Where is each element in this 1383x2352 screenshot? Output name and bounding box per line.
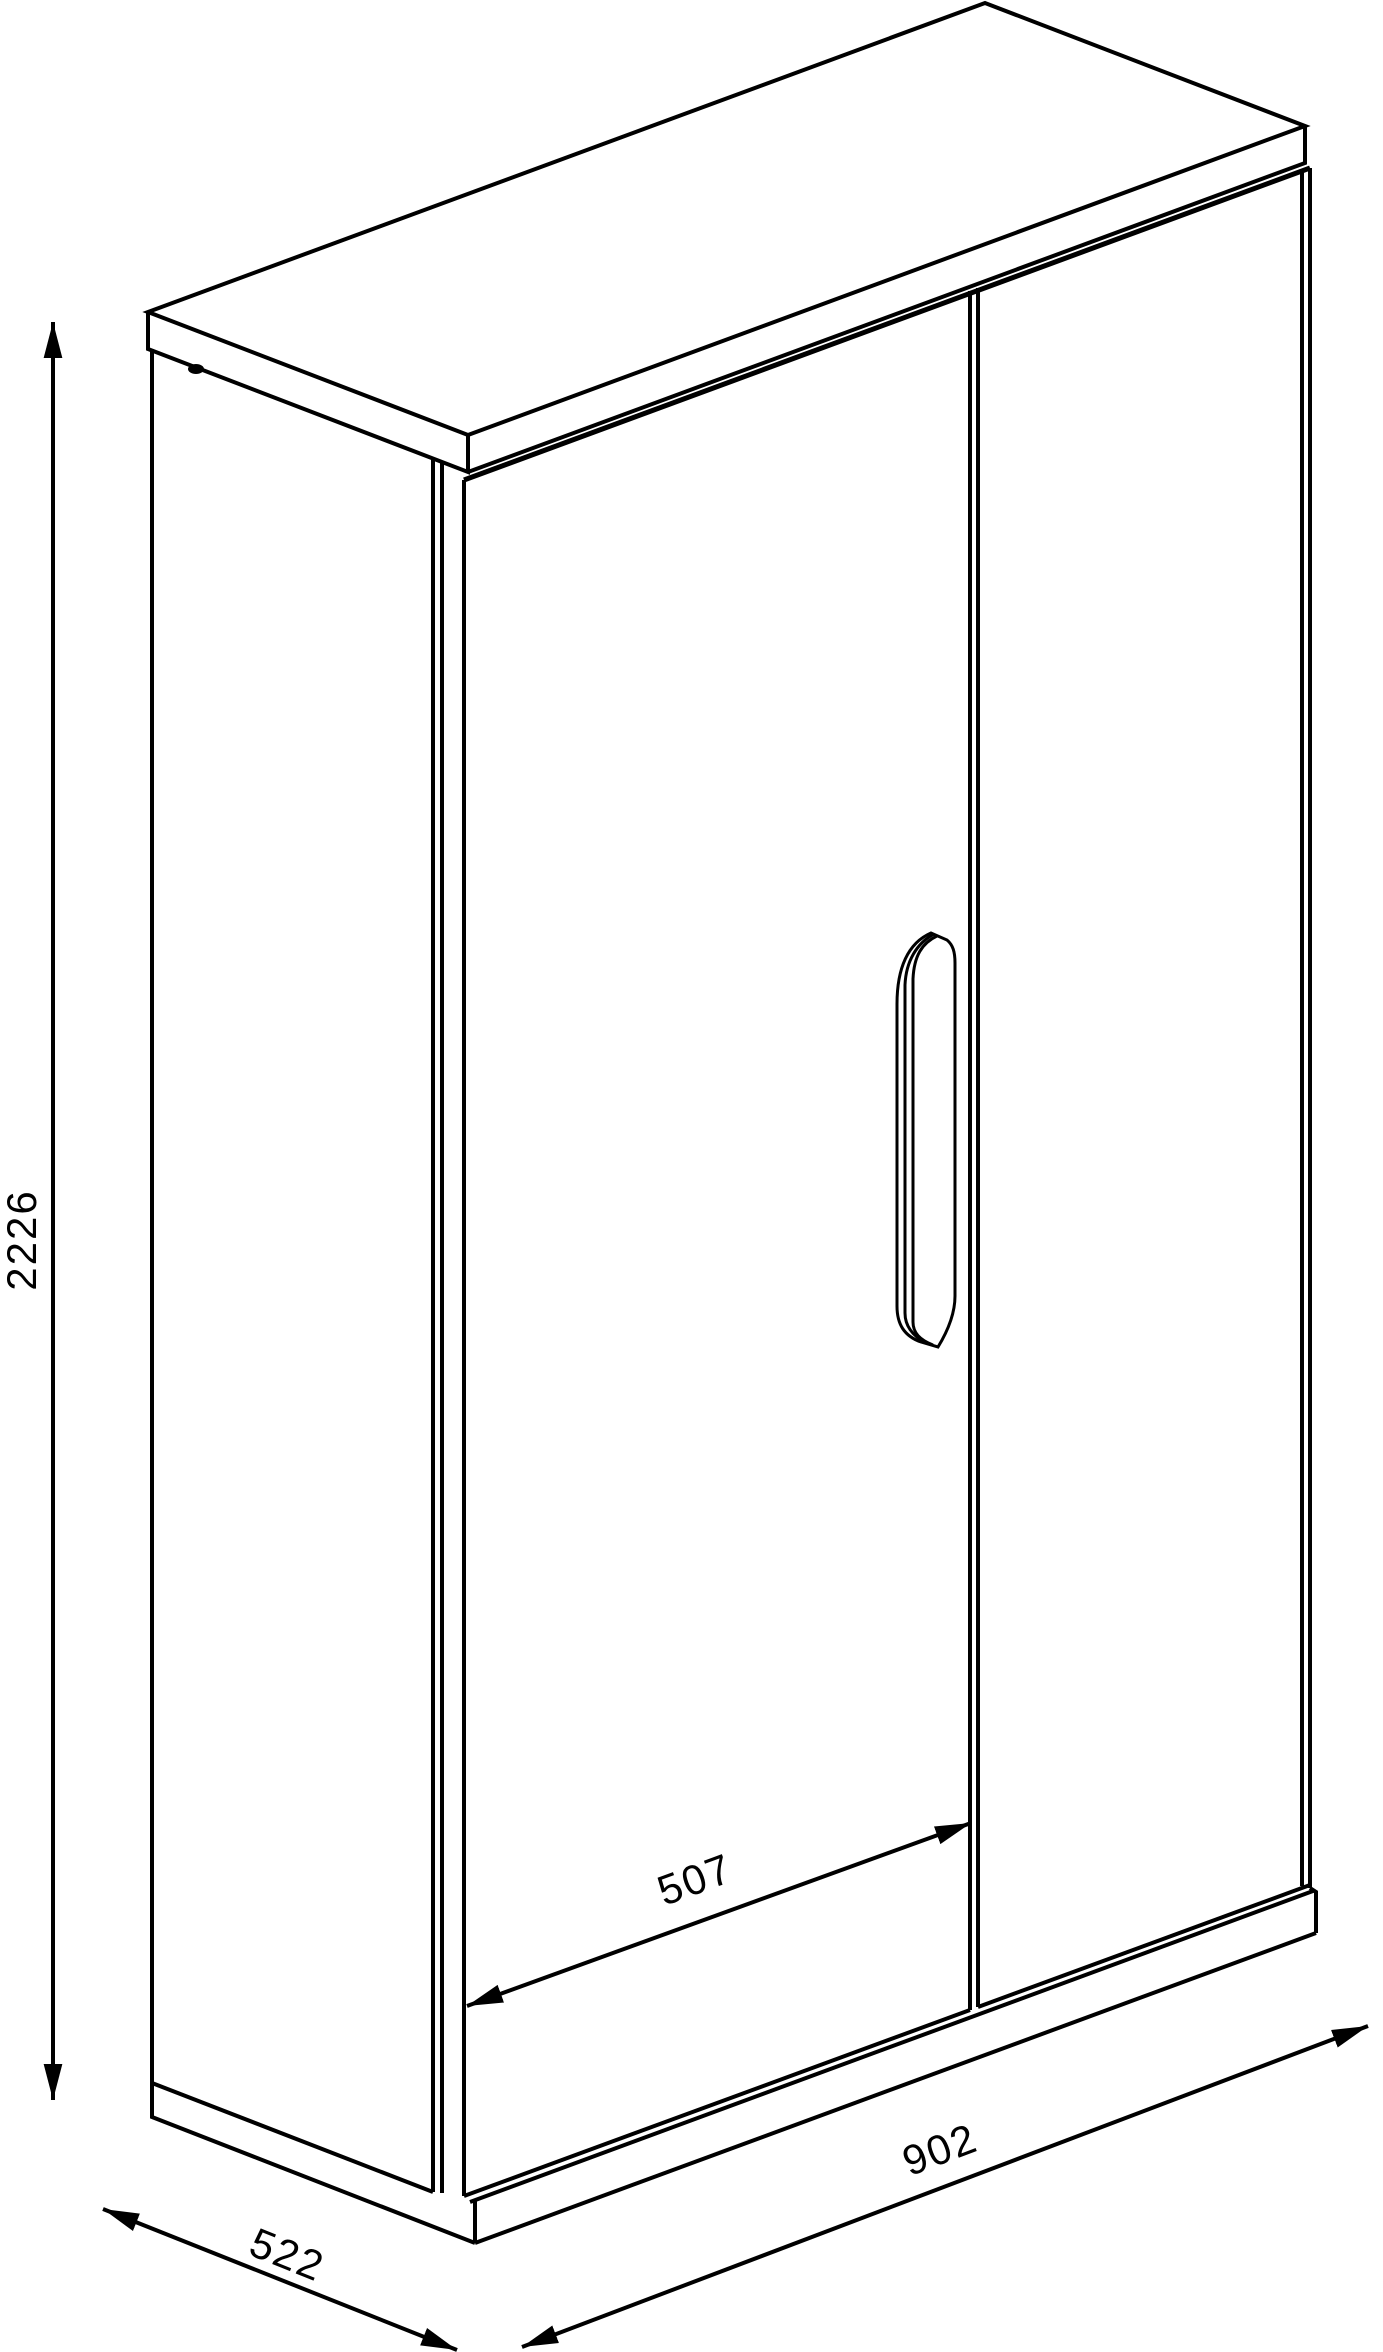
plinth-right-end [1310,1888,1316,1933]
dimension-height-value: 2226 [0,1189,45,1290]
plinth [152,1888,1316,2243]
dimension-depth-value: 522 [243,2219,331,2291]
plinth-top-front-edge [470,1891,1313,2202]
top-panel-top-face [148,3,1305,435]
dimension-width-value: 902 [896,2114,984,2185]
plinth-bottom-front-edge [475,1933,1316,2243]
top-panel [148,3,1305,472]
handle-front-edge [913,936,937,1345]
top-panel-left-face [148,312,468,472]
dimension-left-door-width: 507 [467,1823,971,2006]
wardrobe-technical-drawing: 2226 507 902 522 [0,0,1383,2352]
door-top-edge [464,168,1310,480]
top-panel-front-face [468,126,1305,472]
hinge-mark [188,364,204,374]
door-handle [897,933,955,1347]
dimension-height: 2226 [0,322,53,2100]
dimension-width-line [522,2026,1368,2347]
dimension-width: 902 [522,2026,1368,2347]
dimension-left-door-width-value: 507 [651,1844,739,1914]
dimension-depth: 522 [103,2209,457,2350]
plinth-left-bottom-edge [152,2083,475,2243]
handle-side-contour [905,934,934,1343]
side-panel-bottom-edge [152,2083,433,2192]
right-door-bottom-edge [978,1885,1310,2007]
left-door-bottom-edge [464,2010,970,2196]
doors [464,168,1310,2196]
